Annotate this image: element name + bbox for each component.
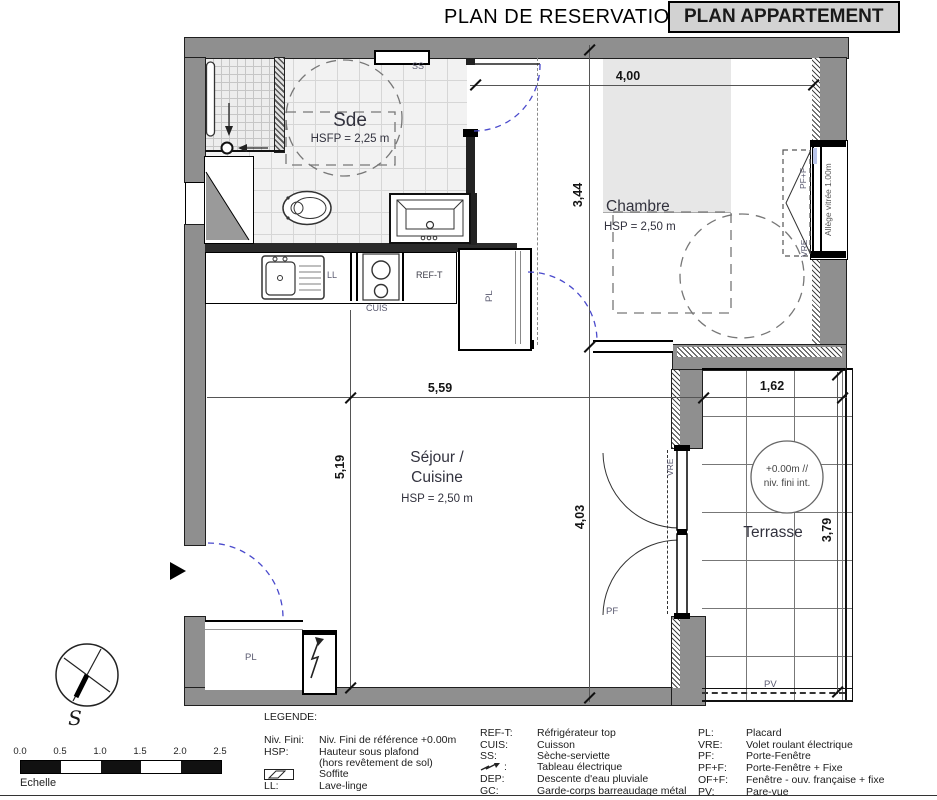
legend-abbr: : — [480, 761, 537, 773]
legend-desc: Fenêtre - ouv. française + fixe — [746, 774, 884, 786]
legend-row: LL:Lave-linge — [264, 780, 367, 792]
scale-segment — [141, 761, 181, 773]
ref-t-tag: REF-T — [416, 270, 443, 280]
legend-abbr — [264, 768, 319, 780]
level-marker-line2: niv. fini int. — [755, 478, 819, 489]
entry-arrow-icon — [170, 562, 186, 580]
legend-abbr-colon: : — [504, 761, 507, 773]
tableau-electrique-arrow — [315, 637, 324, 646]
scale-label: Echelle — [20, 777, 56, 789]
legend-desc: Tableau électrique — [537, 761, 622, 773]
scale-bar — [20, 760, 222, 774]
entry-door-arc — [208, 543, 283, 618]
scale-tick-5: 2.5 — [208, 746, 232, 757]
scale-tick-2: 1.0 — [88, 746, 112, 757]
legend-row: :Tableau électrique — [480, 761, 622, 773]
legend-row: OF+F:Fenêtre - ouv. française + fixe — [698, 774, 884, 786]
scale-tick-4: 2.0 — [168, 746, 192, 757]
scale-segment — [181, 761, 221, 773]
legend-abbr: DEP: — [480, 773, 537, 785]
toilet-icon — [283, 192, 331, 225]
legend-abbr: OF+F: — [698, 774, 746, 786]
sde-door-arc — [474, 64, 540, 131]
compass-south-label: S — [60, 706, 90, 730]
tableau-electrique-icon — [311, 640, 319, 678]
legend-desc: Lave-linge — [319, 780, 367, 792]
legend-abbr: REF-T: — [480, 727, 537, 739]
legend-desc: Porte-Fenêtre + Fixe — [746, 762, 843, 774]
sejour-height-label: HSP = 2,50 m — [395, 493, 479, 505]
ss-tag: SS — [412, 61, 424, 71]
pf-door-leaf-top — [677, 450, 687, 530]
legend-abbr: PV: — [698, 786, 746, 798]
legend-abbr: LL: — [264, 780, 319, 792]
sde-label: Sde — [322, 110, 378, 132]
pf-door-arc-bottom — [603, 540, 679, 615]
legend-row: PL:Placard — [698, 727, 782, 739]
scale-segment — [21, 761, 61, 773]
legend-title: LEGENDE: — [264, 711, 317, 723]
dim-sejour-w: 5,59 — [415, 381, 465, 395]
legend-desc: Réfrigérateur top — [537, 727, 616, 739]
scale-tick-3: 1.5 — [128, 746, 152, 757]
legend-desc: Porte-Fenêtre — [746, 750, 811, 762]
legend-desc: Descente d'eau pluviale — [537, 773, 648, 785]
pf-tag: PF — [606, 606, 618, 617]
legend-abbr: Niv. Fini: — [264, 734, 319, 746]
sheet-bottom-rule — [0, 795, 937, 796]
scale-tick-0: 0.0 — [8, 746, 32, 757]
soffite-symbol — [264, 769, 294, 780]
dim-terrasse-d: 3,79 — [820, 515, 834, 545]
legend-row: Soffite — [264, 768, 349, 780]
pl-entry-tag: PL — [245, 652, 257, 663]
level-marker-circle — [751, 441, 823, 513]
toilet-dot — [286, 196, 289, 199]
shower-arrow-left-head — [238, 144, 247, 152]
legend-desc: Niv. Fini de référence +0.00m — [319, 734, 456, 746]
sejour-label-line1: Séjour / — [395, 449, 479, 467]
legend-row: REF-T:Réfrigérateur top — [480, 727, 616, 739]
ll-tag: LL — [327, 270, 337, 280]
tableau-electrique-legend-icon — [480, 762, 504, 772]
sejour-label-line2: Cuisine — [395, 469, 479, 487]
compass-icon — [47, 633, 129, 717]
chambre-turning-circle — [680, 214, 804, 338]
chambre-door-arc — [528, 272, 597, 341]
cuis-tag: CUIS — [366, 303, 388, 313]
toilet-dot — [286, 216, 289, 219]
plan-vector-overlay — [0, 0, 937, 710]
scale-tick-1: 0.5 — [48, 746, 72, 757]
sde-height-label: HSFP = 2,25 m — [297, 133, 403, 145]
legend-desc: Placard — [746, 727, 782, 739]
scale-segment — [61, 761, 101, 773]
level-marker-line1: +0.00m // — [757, 464, 817, 475]
scale-segment — [101, 761, 141, 773]
dim-terrasse-w: 1,62 — [747, 379, 797, 393]
pf-door-leaf-bottom — [677, 534, 687, 614]
dim-bay-d: 4,03 — [573, 502, 587, 532]
legend-desc: Pare-vue — [746, 786, 789, 798]
terrasse-label: Terrasse — [738, 524, 808, 542]
legend-row: DEP:Descente d'eau pluviale — [480, 773, 648, 785]
chambre-height-label: HSP = 2,50 m — [604, 221, 676, 233]
chambre-label: Chambre — [606, 198, 670, 216]
pl-hall-tag: PL — [485, 281, 497, 311]
pf-door-cap-bottom — [674, 613, 690, 619]
dim-chambre-w: 4,00 — [603, 69, 653, 83]
legend-desc: Soffite — [319, 768, 349, 780]
dim-chambre-d: 3,44 — [571, 180, 585, 210]
legend-row: PV:Pare-vue — [698, 786, 789, 798]
pf-door-meeting — [677, 529, 687, 535]
shower-drain-icon — [222, 143, 233, 154]
shower-arrow-down-head — [225, 126, 233, 136]
legend-row: PF:Porte-Fenêtre — [698, 750, 811, 762]
vre-terrasse-tag: VRE — [666, 452, 678, 482]
legend-row: Niv. Fini:Niv. Fini de référence +0.00m — [264, 734, 456, 746]
vre-chambre-tag: VRE — [800, 234, 812, 262]
pf-door-cap-top — [674, 445, 690, 451]
dim-sejour-d: 5,19 — [333, 452, 347, 482]
legend-row: PF+F:Porte-Fenêtre + Fixe — [698, 762, 843, 774]
legend-abbr: PF: — [698, 750, 746, 762]
pf-f-tag: PF+F — [799, 158, 811, 198]
legend-abbr: PL: — [698, 727, 746, 739]
shower-door-bar — [207, 62, 215, 136]
pv-tag: PV — [764, 679, 777, 690]
legend-abbr: PF+F: — [698, 762, 746, 774]
